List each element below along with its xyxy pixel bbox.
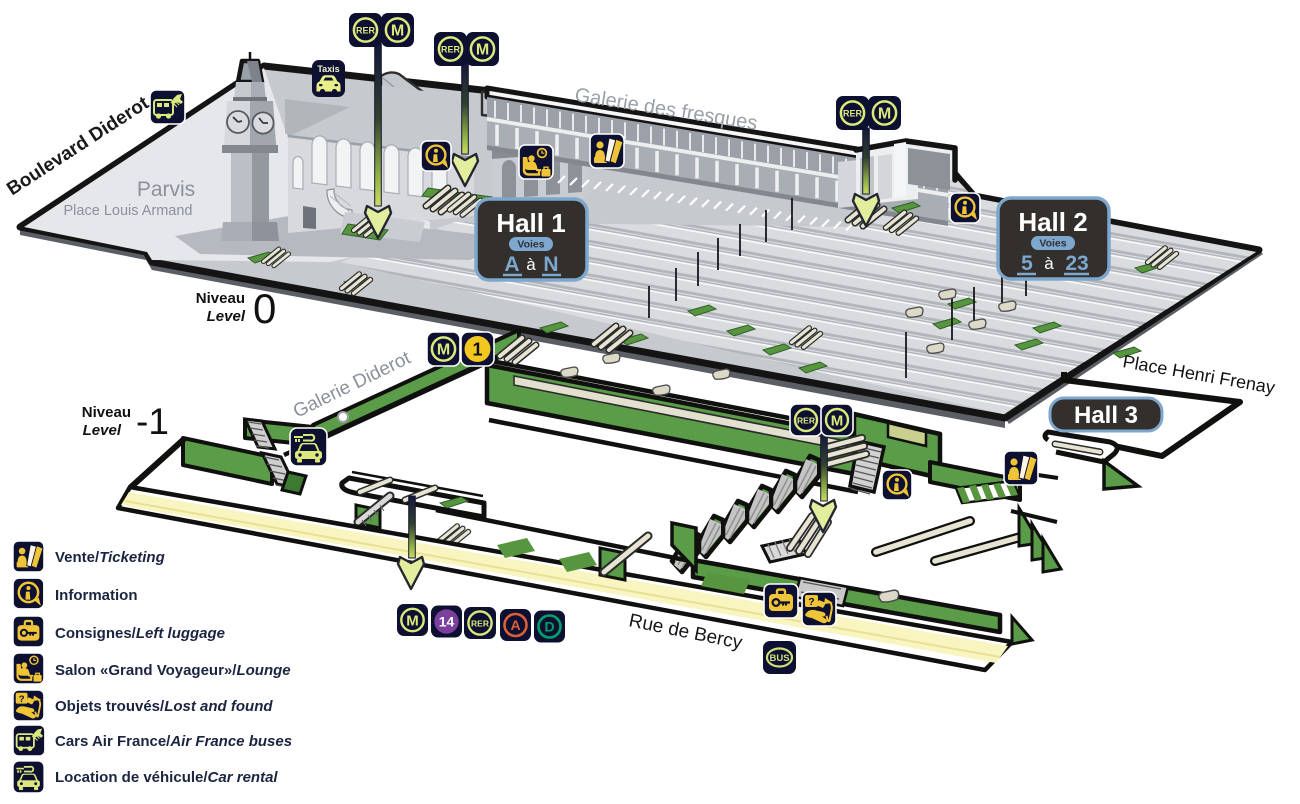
svg-text:M: M [831,413,844,430]
svg-text:RER: RER [797,416,815,426]
svg-text:Consignes/Left luggage: Consignes/Left luggage [55,625,225,642]
svg-text:RER: RER [843,109,863,119]
svg-text:A: A [504,253,519,276]
svg-text:Voies: Voies [1039,238,1066,250]
svg-text:Vente/Ticketing: Vente/Ticketing [55,549,165,566]
svg-text:1: 1 [472,340,482,360]
svg-text:Objets trouvés/Lost and found: Objets trouvés/Lost and found [55,698,273,715]
svg-text:Place Louis Armand: Place Louis Armand [64,203,193,219]
svg-text:Taxis: Taxis [317,64,339,74]
svg-text:Niveau: Niveau [196,290,245,307]
svg-text:A: A [510,617,520,633]
svg-text:RER: RER [356,26,376,36]
svg-text:BUS: BUS [769,653,789,664]
svg-text:Level: Level [207,308,246,325]
svg-text:Cars Air France/Air France bus: Cars Air France/Air France buses [55,733,292,750]
svg-text:14: 14 [439,614,455,630]
svg-text:RER: RER [471,619,489,629]
svg-text:M: M [476,42,489,59]
svg-text:5: 5 [1021,252,1033,275]
svg-text:M: M [878,106,891,123]
svg-text:Information: Information [55,587,138,604]
svg-text:à: à [526,255,536,274]
svg-text:Level: Level [83,422,122,439]
svg-text:M: M [437,342,450,359]
svg-text:Hall 3: Hall 3 [1074,402,1138,429]
svg-text:Parvis: Parvis [137,178,195,201]
svg-text:Hall 1: Hall 1 [496,208,565,238]
svg-text:0: 0 [253,285,276,332]
svg-text:à: à [1044,254,1054,273]
svg-text:Niveau: Niveau [82,404,131,421]
svg-text:23: 23 [1065,252,1088,275]
svg-text:Hall 2: Hall 2 [1018,207,1087,237]
svg-text:M: M [391,23,404,40]
svg-text:Voies: Voies [517,239,544,251]
svg-text:-1: -1 [136,401,169,442]
svg-text:RER: RER [441,45,461,55]
svg-text:D: D [544,619,554,635]
svg-text:M: M [406,613,419,630]
svg-text:Location de véhicule/Car renta: Location de véhicule/Car rental [55,769,278,786]
svg-text:N: N [543,253,558,276]
svg-text:Salon «Grand Voyageur»/Lounge: Salon «Grand Voyageur»/Lounge [55,662,291,679]
